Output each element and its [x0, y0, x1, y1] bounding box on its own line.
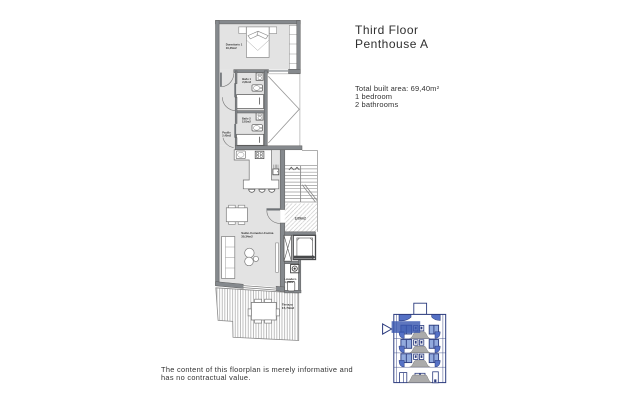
svg-text:2,81m2: 2,81m2 [242, 80, 251, 84]
svg-text:1,63m2: 1,63m2 [284, 280, 294, 284]
svg-text:2,81m2: 2,81m2 [242, 120, 251, 124]
svg-text:2,45m2: 2,45m2 [222, 133, 231, 137]
svg-text:15,73m2: 15,73m2 [282, 306, 294, 310]
svg-text:10,45m2: 10,45m2 [226, 46, 237, 50]
svg-text:3,09m2: 3,09m2 [295, 217, 306, 221]
svg-text:30,34m2: 30,34m2 [241, 234, 253, 238]
